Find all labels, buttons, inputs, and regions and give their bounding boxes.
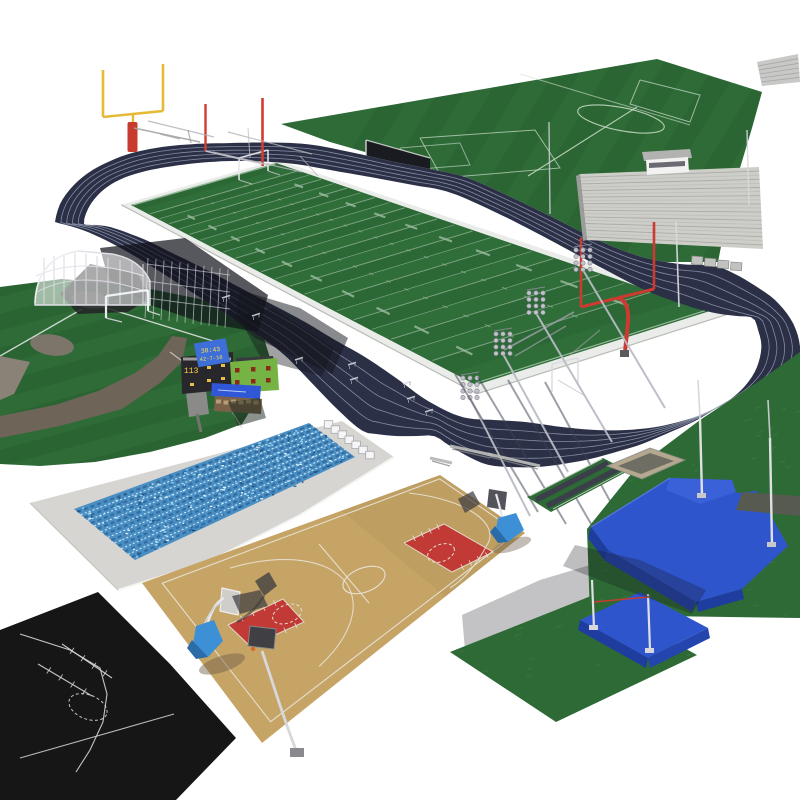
svg-text:113: 113 [184, 367, 199, 376]
